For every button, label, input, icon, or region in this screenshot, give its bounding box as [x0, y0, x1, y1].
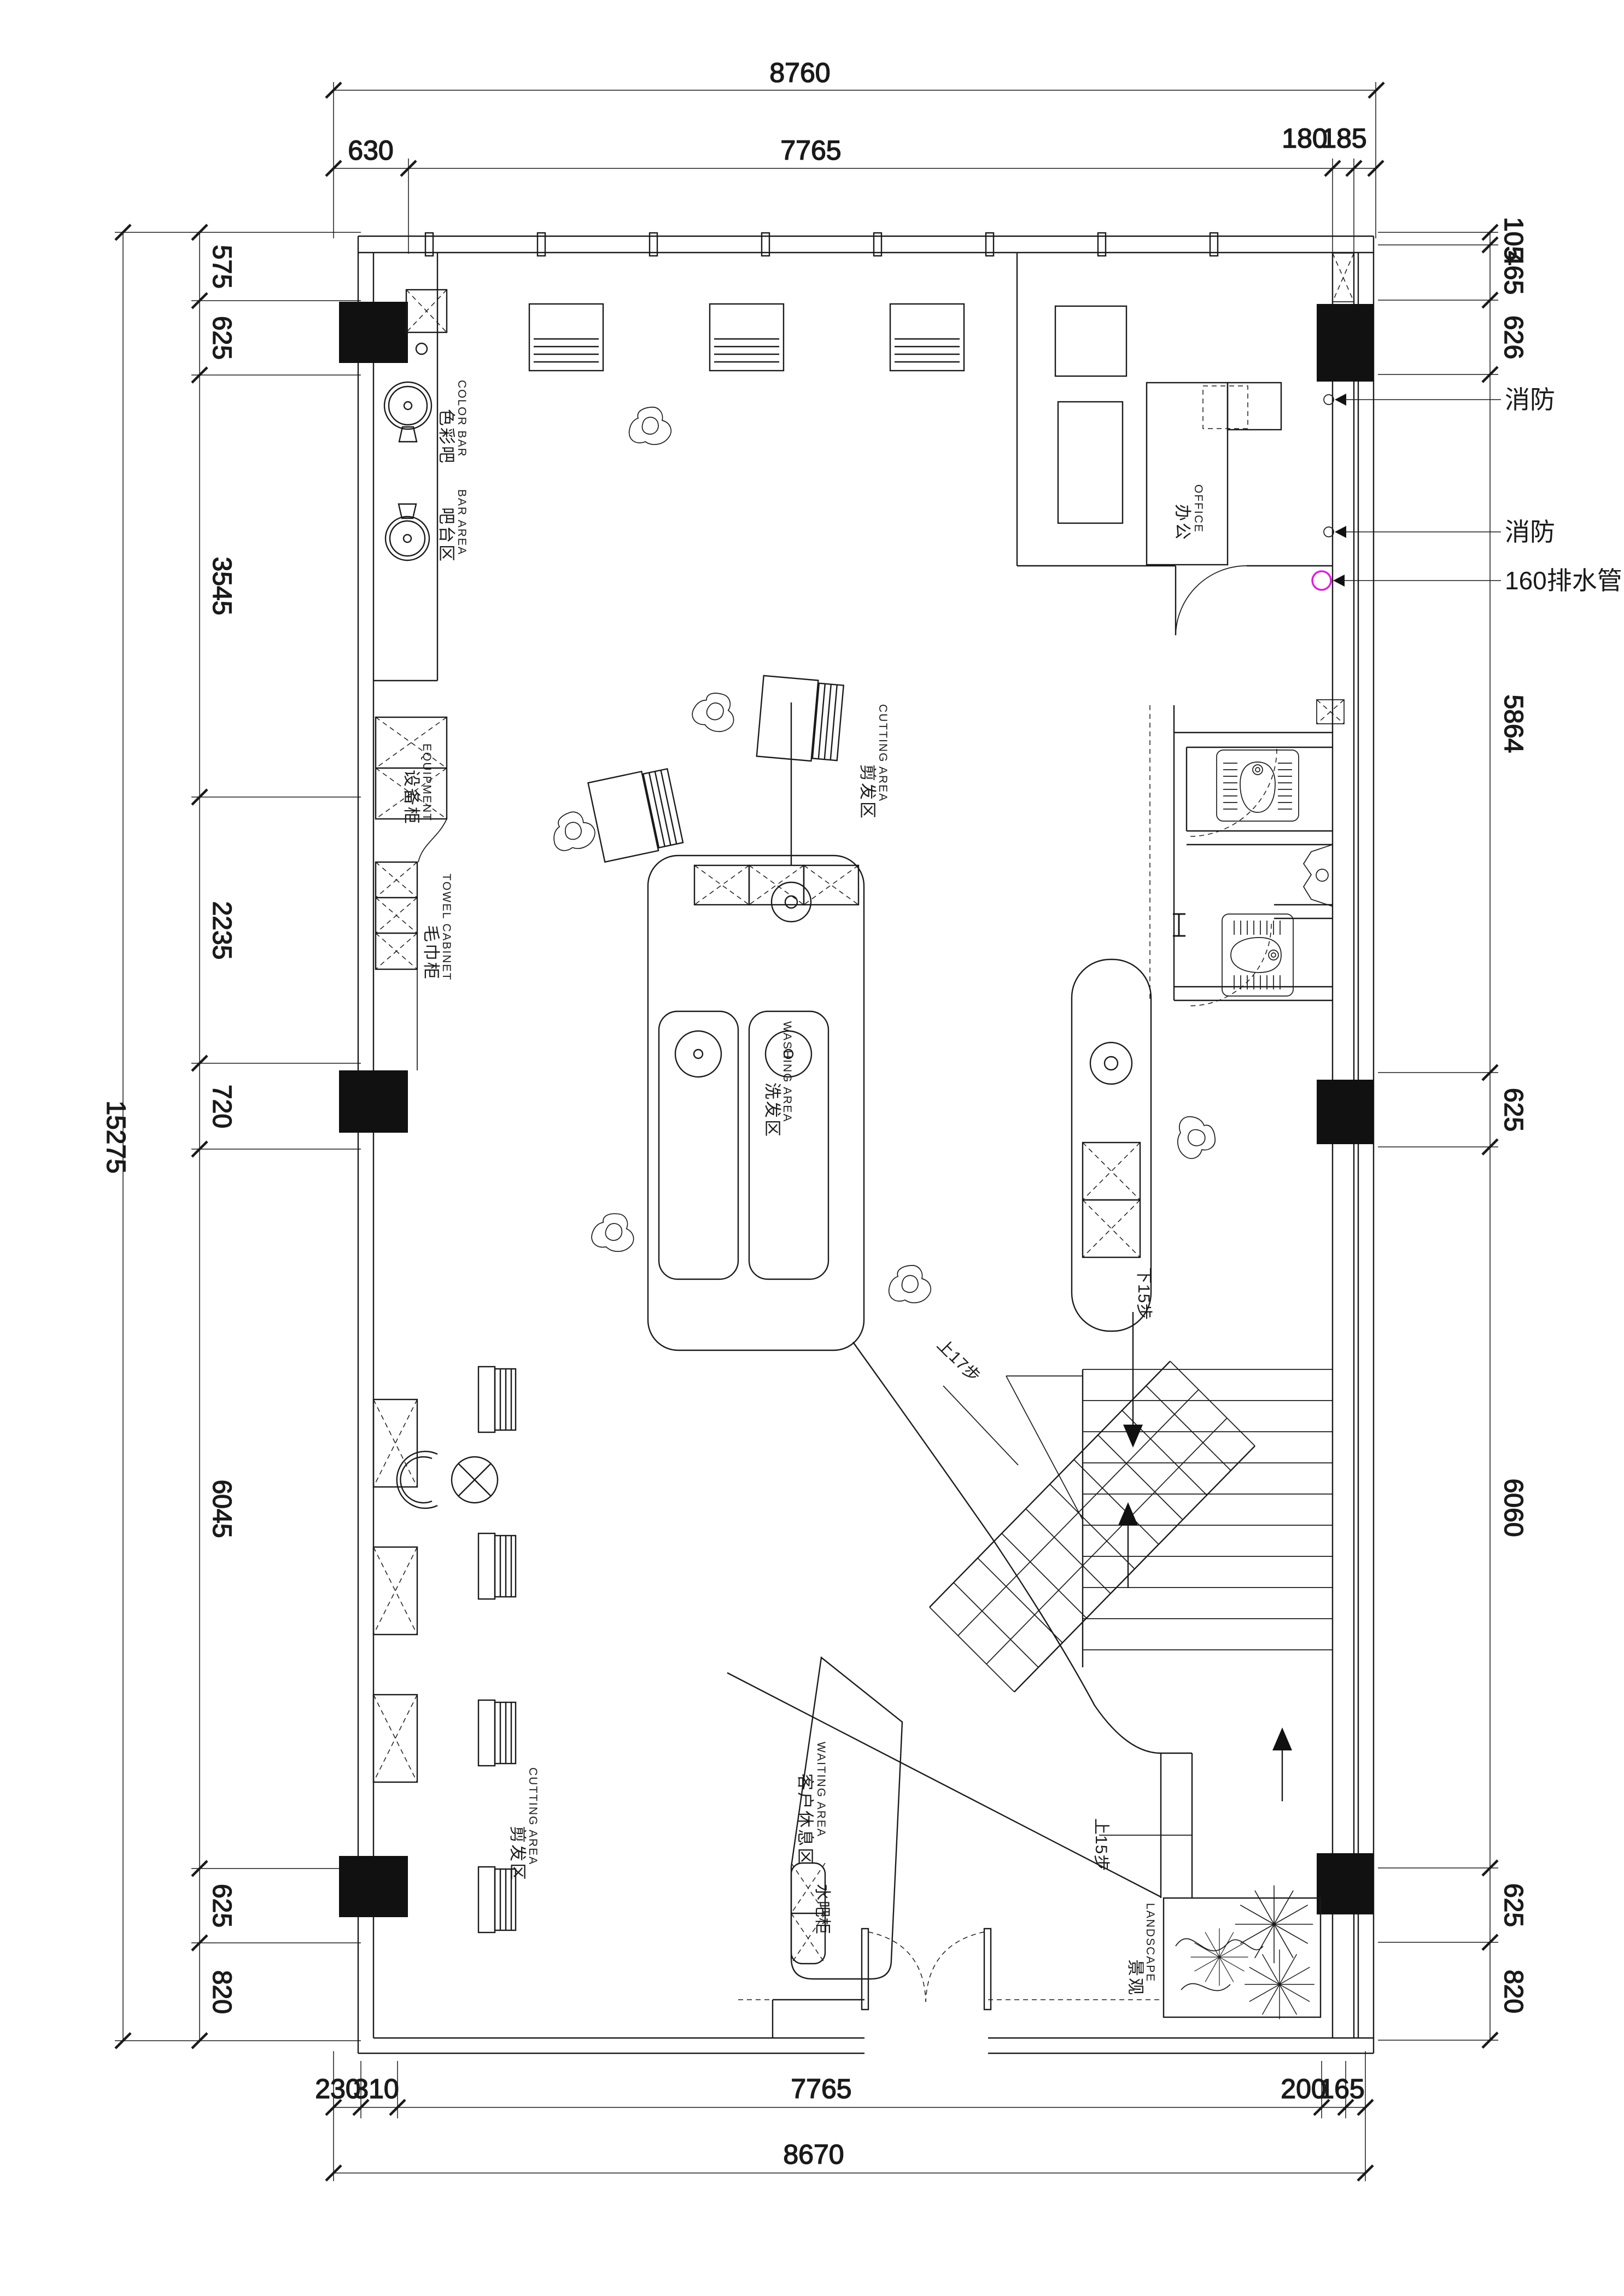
dim-left-3545: 3545: [207, 557, 236, 616]
stair-arrow-up: [1118, 1502, 1138, 1525]
label-up-15: 上15步: [1092, 1818, 1110, 1871]
label-bar-area-en: BAR AREA: [455, 489, 468, 555]
outer-walls: [358, 236, 1374, 2053]
label-landscape-en: LANDSCAPE: [1144, 1903, 1156, 1982]
toilet-door-swing: [1189, 749, 1277, 836]
dim-left-625a: 625: [207, 316, 236, 360]
label-down-15: 下15步: [1135, 1267, 1153, 1320]
washing-island: [648, 856, 864, 1350]
dim-right-465: 465: [1499, 251, 1528, 295]
dim-left-720: 720: [207, 1085, 236, 1128]
wash-basin-drain: [1316, 869, 1328, 881]
dim-top-seg-7765: 7765: [780, 135, 841, 166]
toilet-block: [1173, 749, 1333, 1006]
room-labels: COLOR BAR 色彩吧 BAR AREA 吧台区 EQUIPMENT 设备柜…: [402, 380, 1205, 1996]
plant: [1191, 1929, 1248, 1986]
landscape-planter: [1164, 1885, 1321, 2019]
dim-right-626: 626: [1499, 315, 1528, 359]
label-bar-area-cn: 吧台区: [437, 507, 456, 563]
entrance-double-door: [862, 1929, 991, 2010]
hood-dryer-and-table: [397, 1451, 498, 1508]
dim-top-seg-630: 630: [348, 135, 393, 166]
south-wall-cabinets: [373, 1399, 417, 1782]
dim-left-2235: 2235: [207, 901, 236, 960]
dim-bot-seg-165: 165: [1319, 2074, 1364, 2104]
dim-top-seg-180: 180: [1282, 123, 1327, 154]
label-towel-cabinet-en: TOWEL CABINET: [440, 874, 453, 981]
towel-cabinet: [376, 862, 417, 1070]
plant: [1245, 1949, 1315, 2019]
label-cutting-center-cn: 剪发区: [858, 764, 877, 820]
label-landscape-cn: 景观: [1126, 1959, 1145, 1996]
dim-right-5864: 5864: [1499, 695, 1528, 753]
dim-left-overall: 15275: [101, 1100, 130, 1173]
fire-hydrant-label-2: 消防: [1505, 518, 1555, 546]
dim-right-625b: 625: [1499, 1883, 1528, 1927]
label-washing-cn: 洗发区: [763, 1082, 782, 1138]
office-furniture: [1055, 306, 1281, 565]
label-up-17: 上17步: [933, 1336, 984, 1386]
drain-pipe-label: 160排水管: [1505, 566, 1622, 595]
label-equipment-cn: 设备柜: [402, 770, 421, 825]
dim-bot-seg-7765: 7765: [791, 2074, 851, 2104]
dim-right-625a: 625: [1499, 1088, 1528, 1132]
squat-toilet: [1222, 914, 1293, 996]
label-office-cn: 办公: [1173, 504, 1192, 541]
washing-bed: [659, 1011, 738, 1279]
dimension-chain-left: 15275 575 625 3545 2235 720 6045 625 820: [101, 225, 361, 2048]
label-color-bar-cn: 色彩吧: [437, 409, 456, 465]
label-cutting-south-en: CUTTING AREA: [527, 1767, 539, 1865]
stair-arrow-down: [1123, 1425, 1143, 1448]
structural-columns: [339, 302, 1374, 1917]
dimension-chain-top: 8760 630 7765 180 185: [326, 57, 1384, 254]
label-cutting-center-en: CUTTING AREA: [877, 704, 889, 802]
dim-top-seg-185: 185: [1321, 123, 1366, 154]
plant: [1235, 1885, 1313, 1964]
label-water-bar-cn: 水吧柜: [813, 1884, 831, 1935]
floorplan-sheet: 8760 630 7765 180 185 230 310 7765 200: [0, 0, 1624, 2296]
dim-left-6045: 6045: [207, 1480, 236, 1538]
drain-pipe-symbol: [1312, 571, 1331, 590]
squat-toilet: [1217, 750, 1299, 821]
label-color-bar-en: COLOR BAR: [455, 380, 468, 458]
dim-left-575: 575: [207, 245, 236, 289]
styling-stations-north: [529, 304, 964, 371]
label-cutting-south-cn: 剪发区: [508, 1826, 527, 1882]
toilet-door-swing: [1189, 924, 1271, 1006]
label-waiting-cn: 客户休息区: [796, 1773, 815, 1866]
label-towel-cabinet-cn: 毛巾柜: [422, 925, 441, 981]
dimension-chain-bottom: 230 310 7765 200 165 8670: [315, 2051, 1373, 2181]
dim-top-overall: 8760: [769, 57, 830, 88]
dim-right-6060: 6060: [1499, 1479, 1528, 1537]
dimension-chain-right: 105 465 626 5864 625 6060 625 820: [1378, 217, 1528, 2048]
label-equipment-en: EQUIPMENT: [420, 743, 433, 822]
fire-hydrant-label-1: 消防: [1505, 385, 1555, 414]
label-washing-en: WASHING AREA: [781, 1021, 793, 1122]
stair-arrow-up: [1272, 1727, 1292, 1750]
label-office-en: OFFICE: [1192, 484, 1205, 533]
label-waiting-en: WAITING AREA: [815, 1742, 827, 1837]
dim-right-820: 820: [1499, 1970, 1528, 2013]
dim-bot-overall: 8670: [783, 2139, 844, 2170]
staircase: [930, 1312, 1333, 1835]
floorplan-drawing: 8760 630 7765 180 185 230 310 7765 200: [0, 0, 1624, 2296]
dim-bot-seg-310: 310: [353, 2074, 399, 2104]
dim-left-820: 820: [207, 1970, 236, 2014]
dim-left-625b: 625: [207, 1884, 236, 1928]
cutting-zone-center: [588, 676, 844, 922]
